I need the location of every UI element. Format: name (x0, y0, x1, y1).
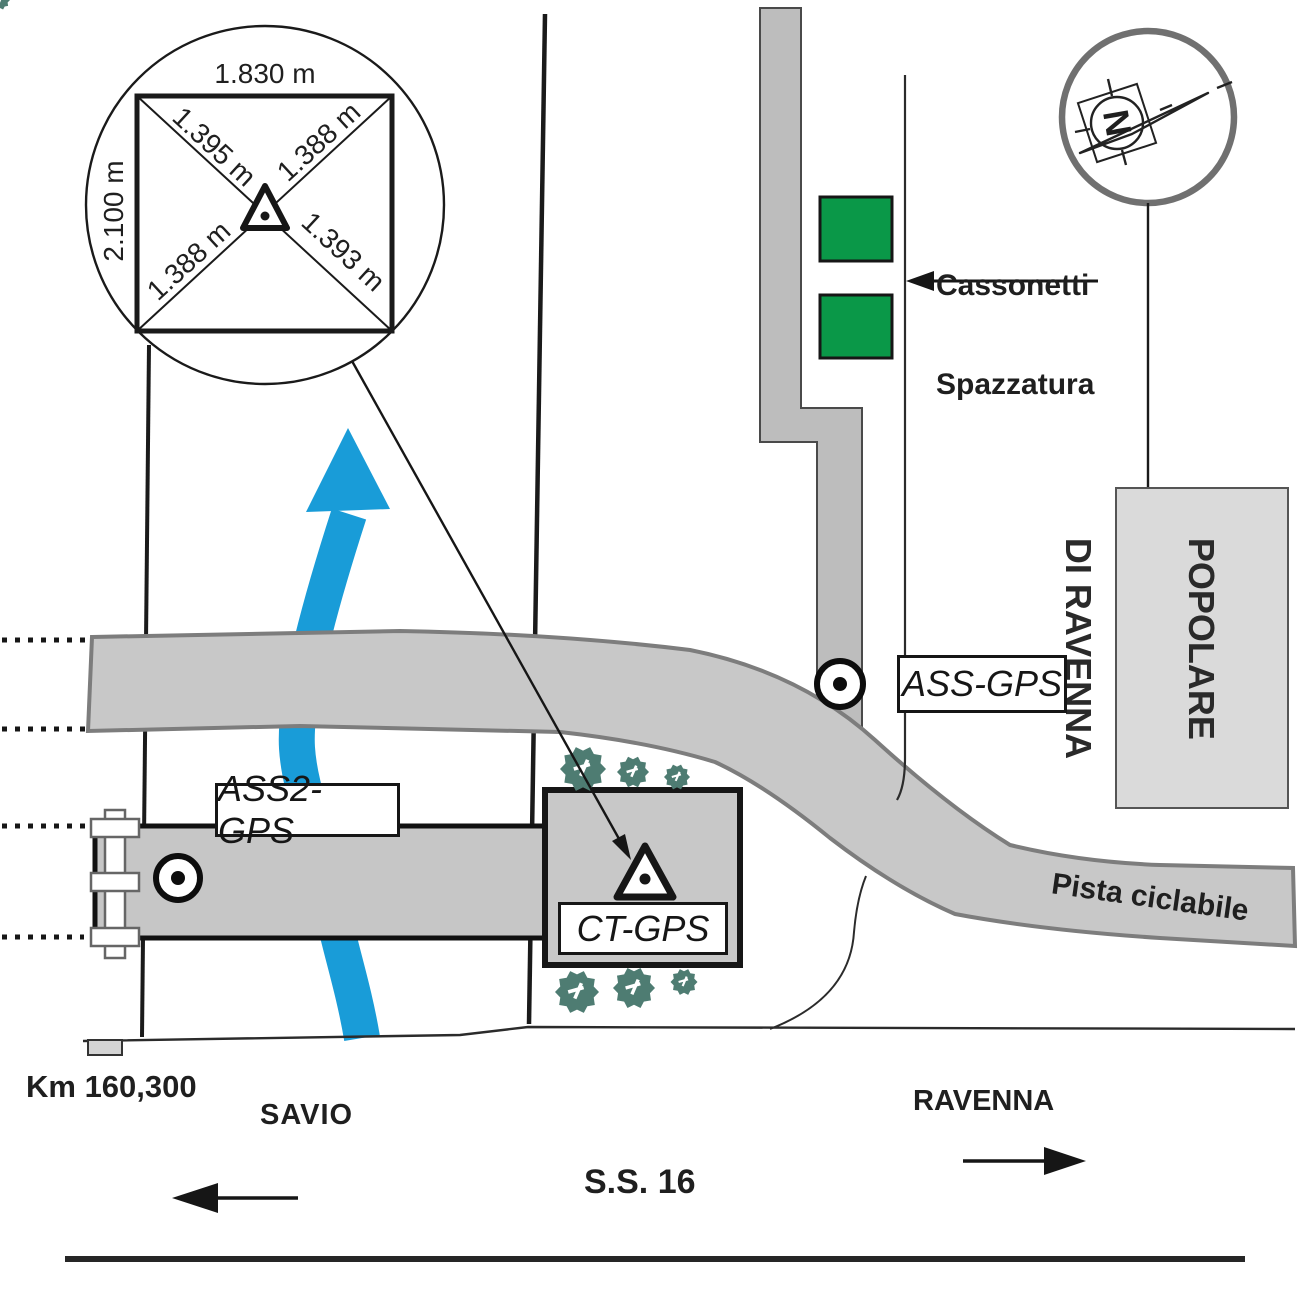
bins-label-line2: Spazzatura (936, 368, 1094, 401)
bins-label: Cassonetti Spazzatura (936, 203, 1094, 434)
measure-left-side: 2.100 m (98, 160, 130, 261)
garbage-bins (820, 197, 892, 358)
bank-name: BANCA POPOLARE DI RAVENNA (977, 537, 1306, 758)
ravenna-direction-arrow-icon (963, 1147, 1086, 1175)
river-arrowhead-icon (306, 428, 390, 512)
ass2-gps-label-text: ASS2-GPS (218, 768, 397, 852)
direction-ravenna-label: RAVENNA (913, 1085, 1054, 1118)
sluice-gate-icon (91, 810, 139, 958)
bins-label-line1: Cassonetti (936, 269, 1094, 302)
km-stone-icon (88, 1040, 122, 1055)
ass2-gps-label: ASS2-GPS (215, 783, 400, 837)
ct-gps-label-text: CT-GPS (577, 908, 710, 950)
dotted-reference-lines (2, 640, 88, 937)
direction-savio-label: SAVIO (260, 1099, 353, 1132)
garbage-bin-icon (820, 295, 892, 358)
road-upper-edge (83, 1027, 1295, 1055)
bank-name-line2: POPOLARE (1182, 537, 1223, 758)
measure-top-side: 1.830 m (214, 58, 315, 90)
bank-building: BANCA POPOLARE DI RAVENNA (1115, 487, 1289, 809)
tree-icon (0, 0, 10, 10)
km-marker-label: Km 160,300 (26, 1069, 197, 1105)
river-flow-arrow (297, 428, 390, 1038)
garbage-bin-icon (820, 197, 892, 261)
road-name-label: S.S. 16 (584, 1163, 696, 1202)
ass-gps-label-text: ASS-GPS (902, 663, 1062, 705)
gps-station-site-sketch: 1.830 m 2.100 m 1.395 m 1.388 m 1.388 m … (0, 0, 1306, 1300)
ass2-gps-marker-icon (156, 856, 200, 900)
ass-gps-label: ASS-GPS (897, 655, 1067, 713)
ass-gps-marker-icon (817, 661, 863, 707)
building-strip (760, 8, 862, 728)
savio-direction-arrow-icon (172, 1183, 298, 1213)
ct-gps-label: CT-GPS (558, 902, 728, 955)
access-ramp-edge (770, 876, 866, 1029)
bank-name-line3: DI RAVENNA (1059, 537, 1100, 758)
